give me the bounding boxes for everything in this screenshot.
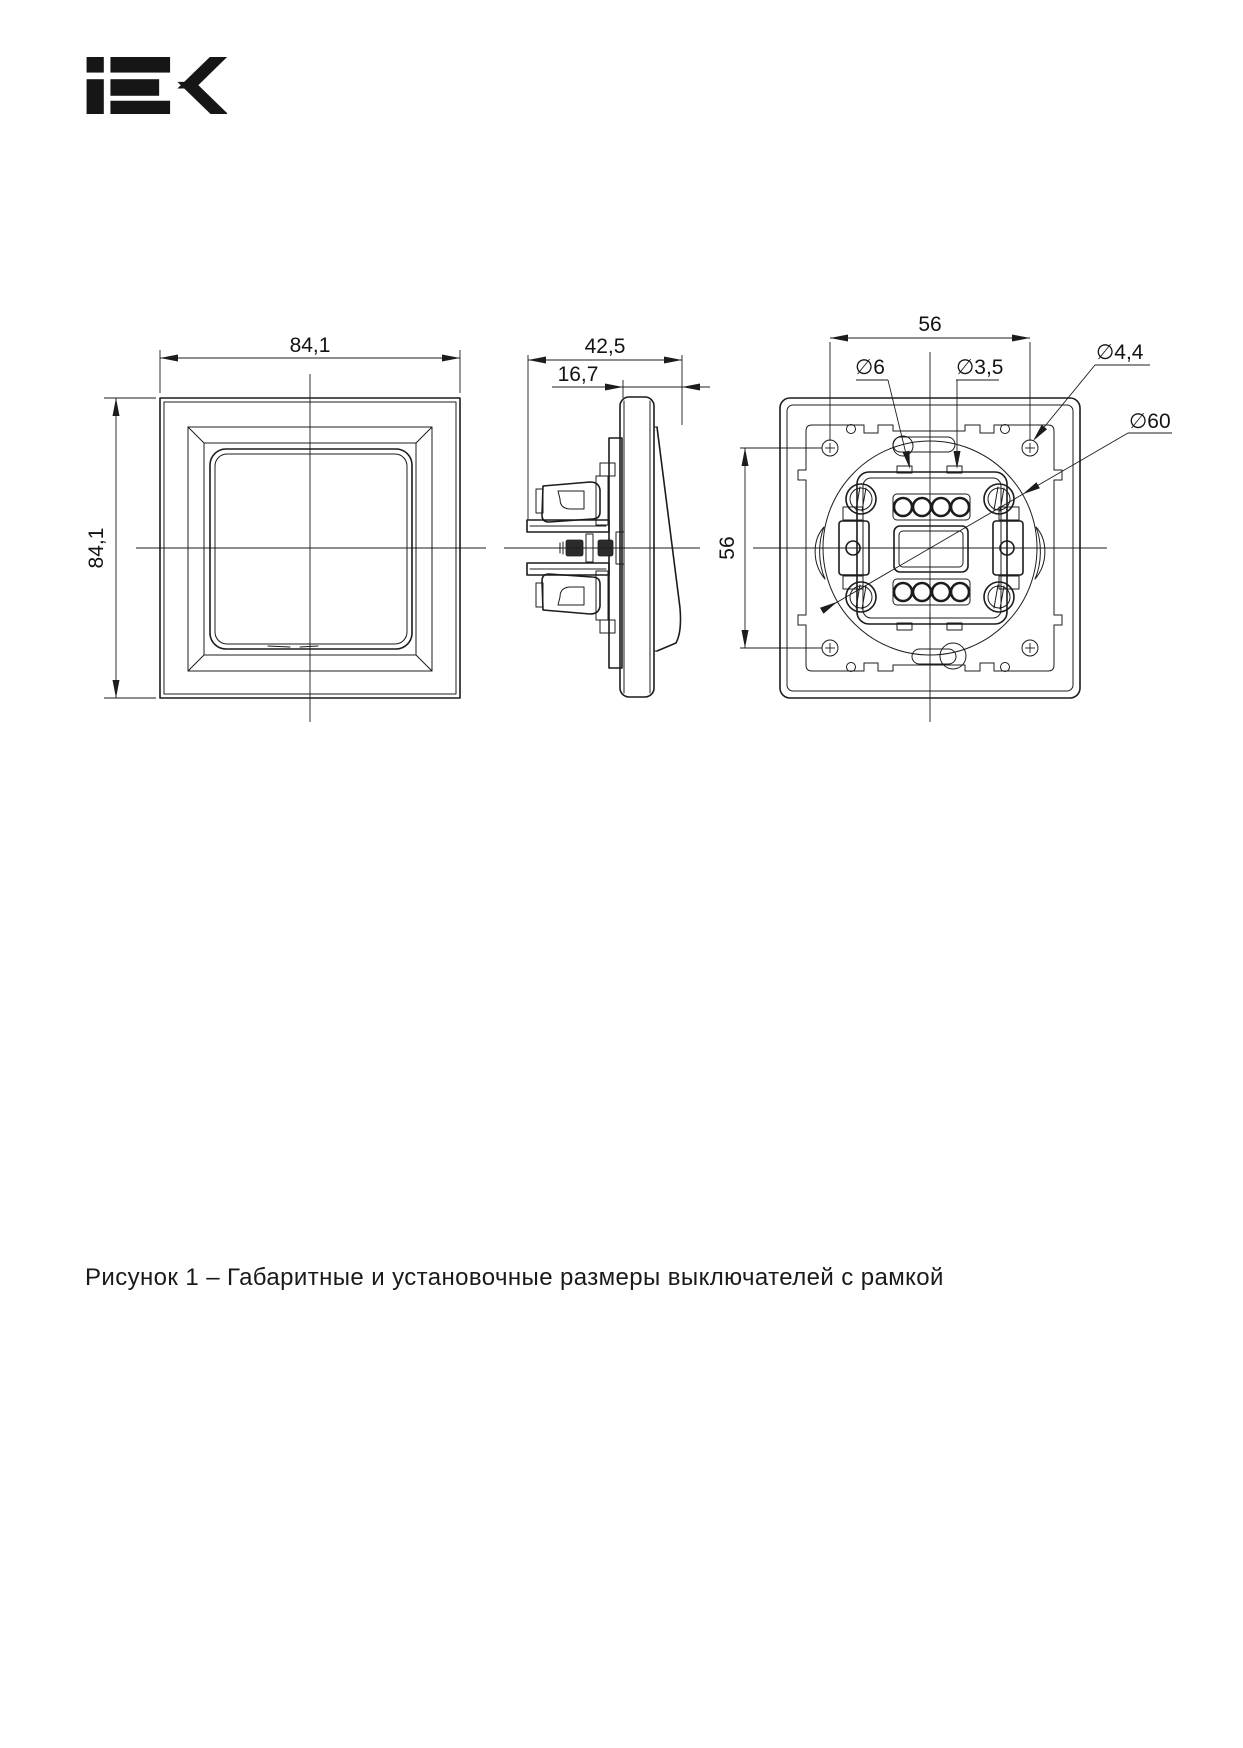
figure-caption: Рисунок 1 – Габаритные и установочные ра… <box>85 1264 944 1292</box>
technical-drawing: 84,1 84,1 <box>0 0 1243 1748</box>
dim-dia-mounting-circle: ∅60 <box>1129 410 1171 433</box>
front-view: 84,1 84,1 <box>85 334 486 722</box>
side-view: 42,5 16,7 <box>504 335 710 697</box>
back-view: 56 56 ∅6 ∅3,5 ∅4,4 ∅60 <box>716 313 1172 722</box>
dim-dia-wire-hole: ∅6 <box>855 356 885 379</box>
document-page: IEK <box>0 0 1243 1748</box>
dim-front-width: 84,1 <box>290 334 331 357</box>
dim-dia-fixing-hole: ∅3,5 <box>956 356 1004 379</box>
dim-side-depth: 42,5 <box>585 335 626 358</box>
dim-front-height: 84,1 <box>85 528 108 569</box>
dim-dia-screw-hole: ∅4,4 <box>1096 341 1144 364</box>
terminal-holes <box>893 494 970 605</box>
dim-side-protrusion: 16,7 <box>558 363 599 386</box>
dim-back-hole-spacing-h: 56 <box>918 313 941 336</box>
dim-back-hole-spacing-v: 56 <box>716 536 739 559</box>
